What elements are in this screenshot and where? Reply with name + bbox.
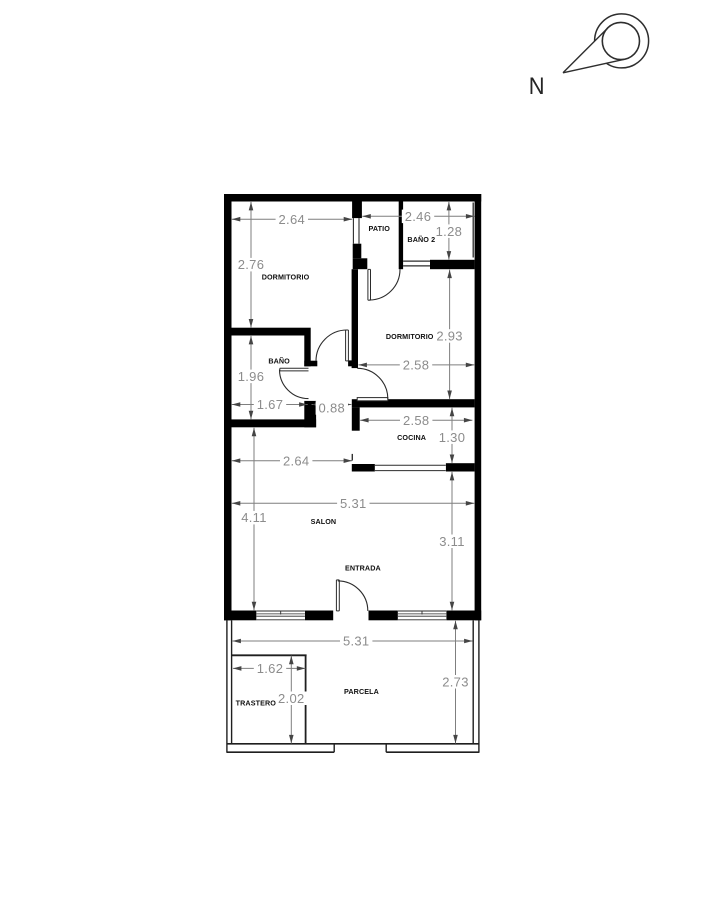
svg-text:PARCELA: PARCELA [344, 687, 379, 696]
svg-text:ENTRADA: ENTRADA [345, 564, 381, 573]
svg-text:1.62: 1.62 [257, 661, 284, 676]
svg-text:3.11: 3.11 [439, 534, 465, 549]
svg-text:1.28: 1.28 [436, 224, 463, 239]
svg-text:2.73: 2.73 [442, 674, 469, 689]
svg-text:2.46: 2.46 [405, 209, 432, 224]
svg-text:2.02: 2.02 [278, 691, 305, 706]
svg-text:1.96: 1.96 [238, 369, 265, 384]
svg-text:PATIO: PATIO [368, 224, 390, 233]
svg-text:2.58: 2.58 [403, 358, 430, 373]
svg-text:1.30: 1.30 [439, 430, 466, 445]
svg-text:4.11: 4.11 [241, 510, 267, 525]
svg-text:0.88: 0.88 [319, 401, 346, 416]
svg-text:N: N [529, 73, 545, 100]
svg-text:DORMITORIO: DORMITORIO [262, 272, 310, 281]
svg-text:2.93: 2.93 [436, 329, 463, 344]
svg-text:2.64: 2.64 [279, 212, 306, 227]
svg-text:TRASTERO: TRASTERO [236, 699, 277, 708]
svg-text:2.76: 2.76 [238, 257, 265, 272]
svg-text:5.31: 5.31 [343, 634, 370, 649]
svg-text:DORMITORIO: DORMITORIO [386, 332, 434, 341]
svg-text:BAÑO 2: BAÑO 2 [407, 235, 435, 244]
svg-text:2.64: 2.64 [283, 453, 310, 468]
svg-text:COCINA: COCINA [397, 433, 426, 442]
svg-text:5.31: 5.31 [340, 496, 367, 511]
svg-text:BAÑO: BAÑO [268, 357, 290, 366]
svg-text:SALON: SALON [311, 517, 337, 526]
svg-text:2.58: 2.58 [403, 413, 430, 428]
svg-text:1.67: 1.67 [257, 397, 284, 412]
